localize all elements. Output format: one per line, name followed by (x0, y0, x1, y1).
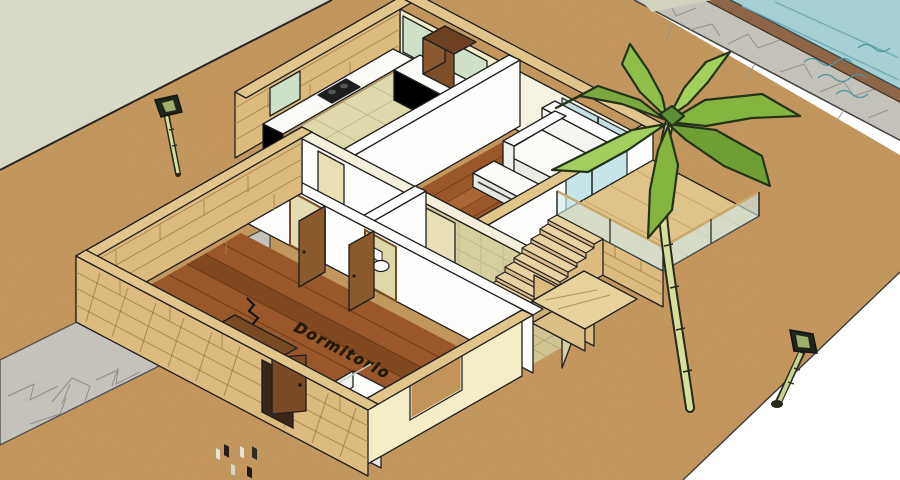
scene-canvas[interactable]: Dormitorio (0, 0, 900, 480)
bath-door-knob (352, 274, 355, 277)
stove-burner (328, 90, 336, 95)
front-door-knob (298, 383, 302, 387)
stove-burner (340, 84, 348, 89)
hall-door-knob (302, 250, 305, 253)
bath-door-leaf (349, 231, 374, 311)
lamp-base (771, 400, 783, 408)
hall-door-leaf (299, 206, 325, 287)
model-viewport[interactable]: Dormitorio (0, 0, 900, 480)
